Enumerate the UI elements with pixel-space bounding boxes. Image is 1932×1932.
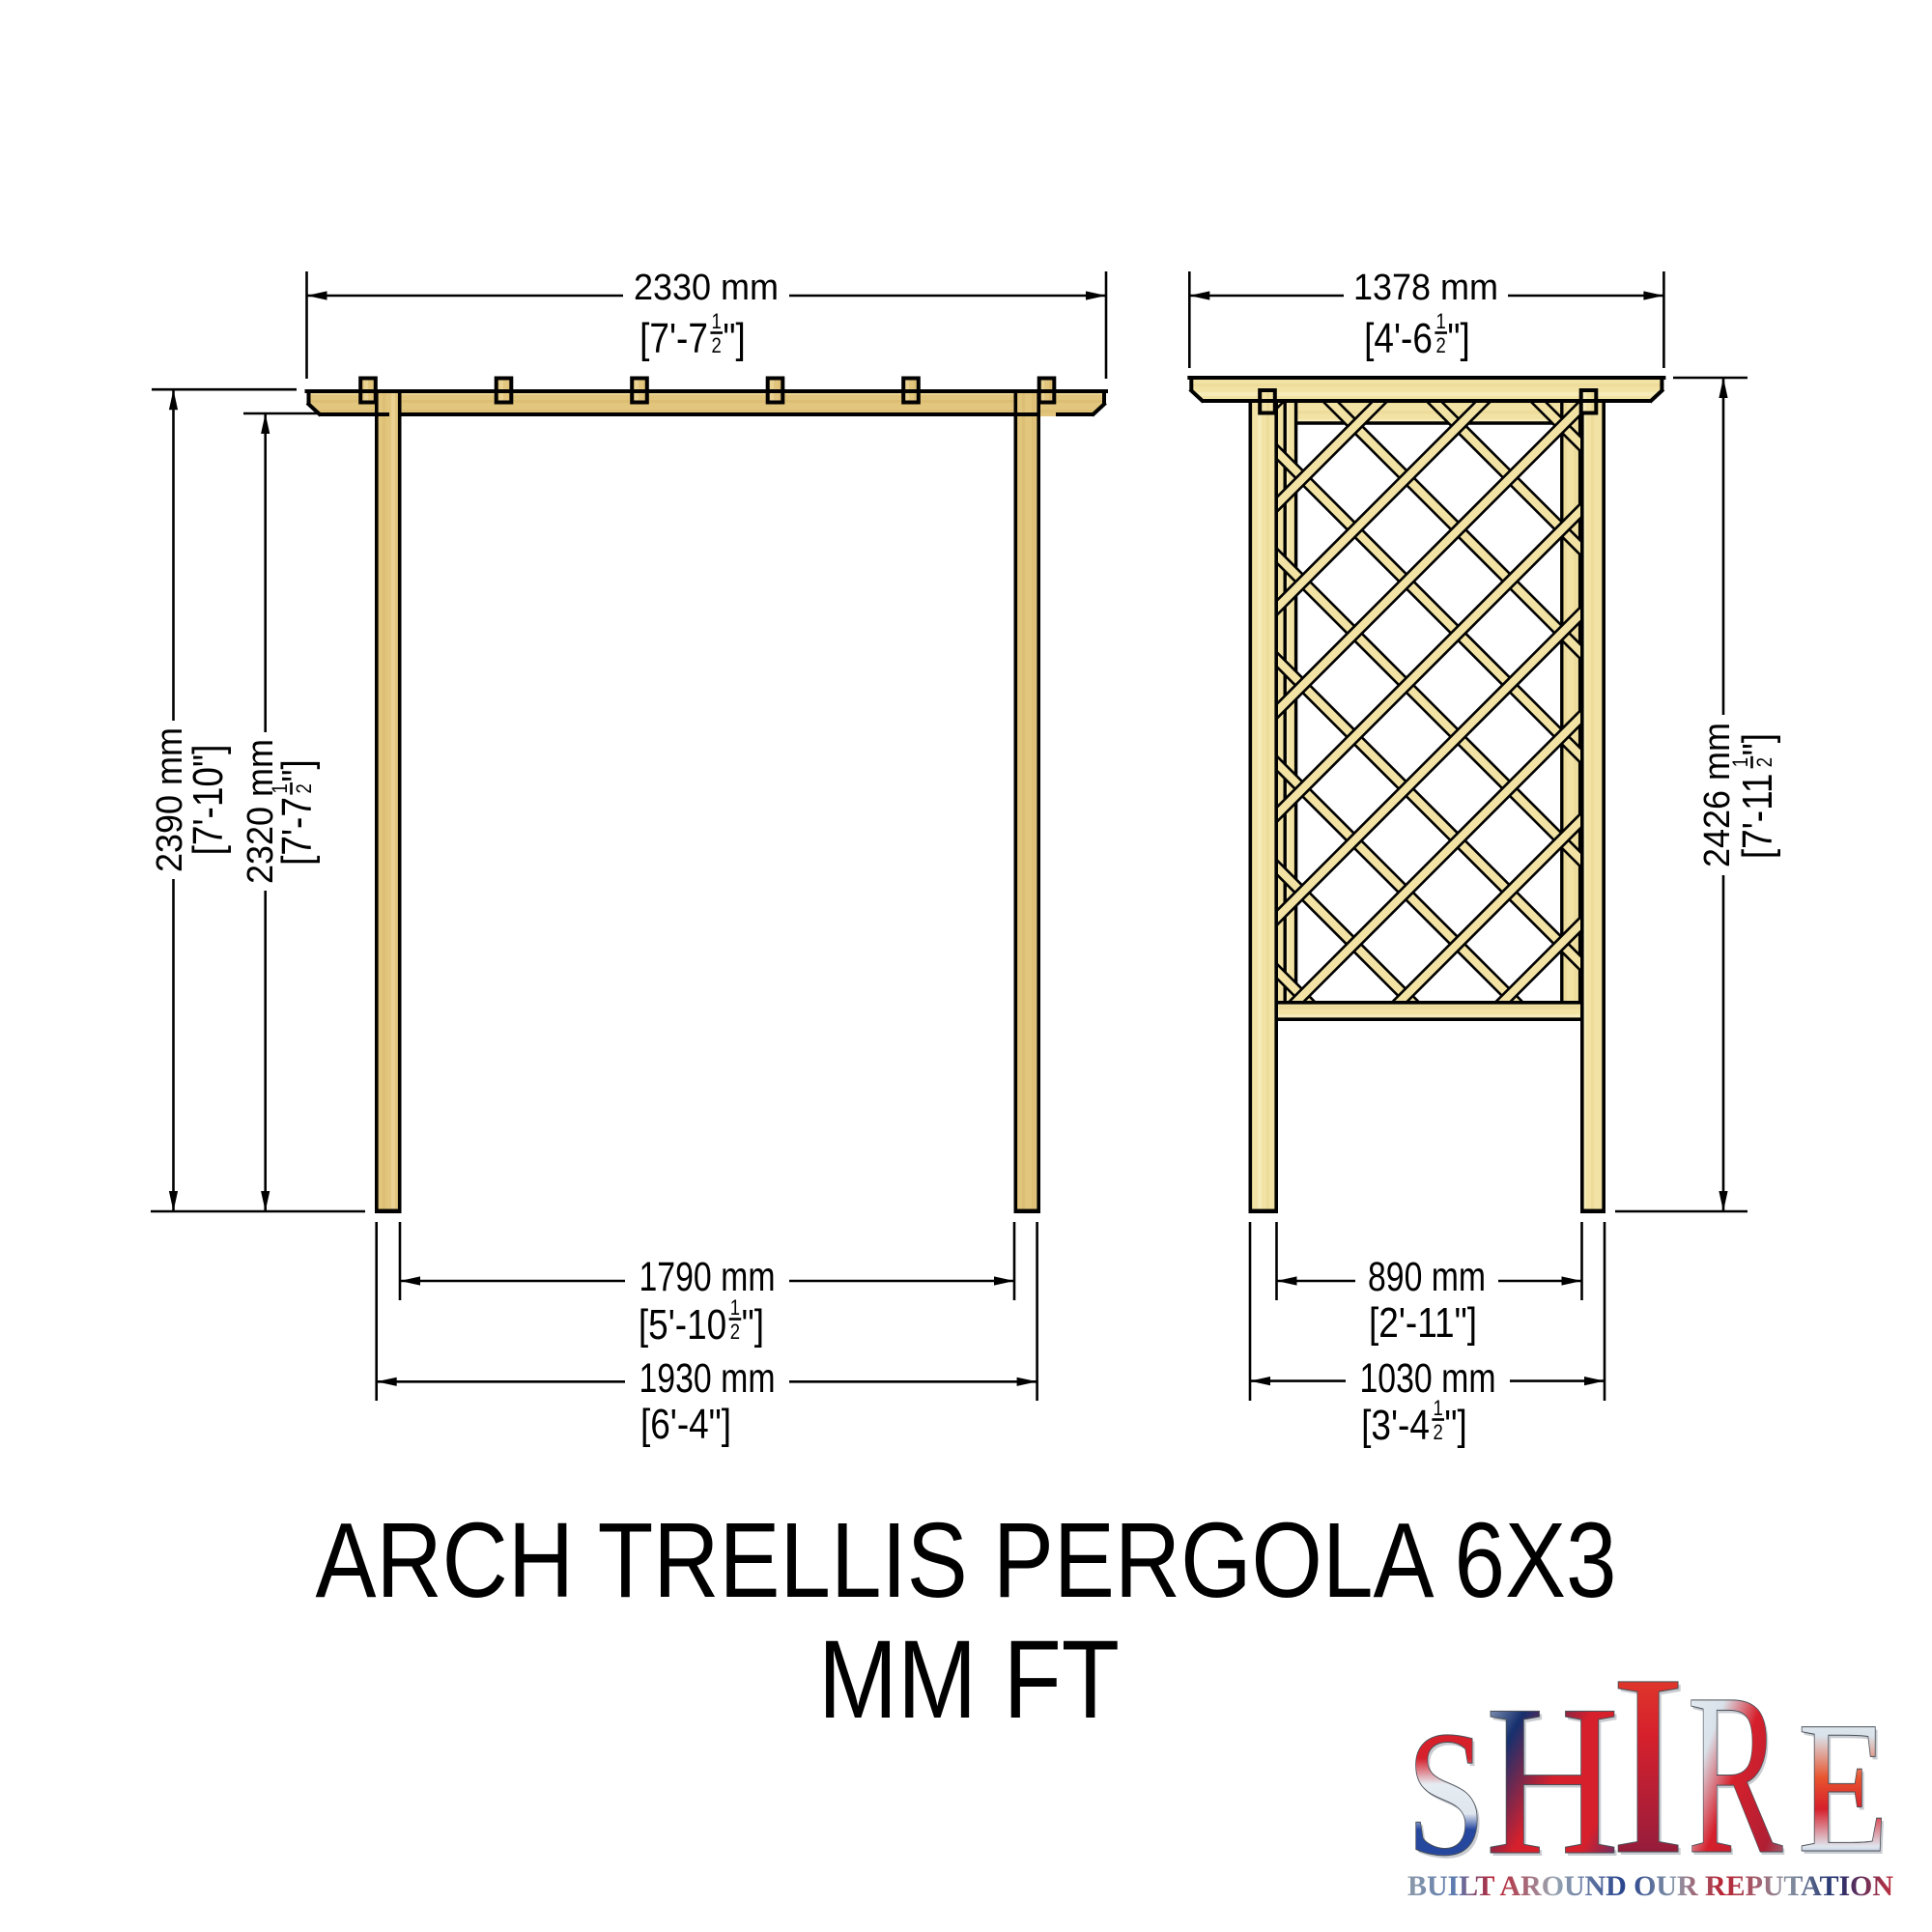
svg-text:1: 1 <box>1434 1398 1443 1421</box>
svg-text:1: 1 <box>730 1297 740 1321</box>
svg-text:I: I <box>1610 1620 1687 1908</box>
svg-text:[4'-6: [4'-6 <box>1364 314 1433 362</box>
svg-text:"]: "] <box>1447 314 1469 362</box>
svg-text:H: H <box>1485 1662 1619 1901</box>
svg-text:1: 1 <box>1436 311 1446 334</box>
svg-text:MM FT: MM FT <box>818 1618 1120 1742</box>
svg-text:[5'-10: [5'-10 <box>639 1300 726 1349</box>
svg-text:890 mm: 890 mm <box>1368 1254 1486 1300</box>
svg-text:2: 2 <box>1436 335 1446 358</box>
svg-text:1930 mm: 1930 mm <box>639 1355 776 1402</box>
svg-text:E: E <box>1798 1684 1889 1892</box>
svg-text:2426 mm: 2426 mm <box>1697 723 1738 867</box>
svg-text:R: R <box>1687 1646 1782 1903</box>
svg-text:2: 2 <box>1754 757 1777 767</box>
svg-text:2: 2 <box>712 335 722 358</box>
svg-text:2: 2 <box>730 1321 740 1345</box>
svg-text:2: 2 <box>294 783 317 793</box>
svg-text:"]: "] <box>1444 1401 1466 1449</box>
svg-text:1030 mm: 1030 mm <box>1360 1355 1496 1402</box>
svg-text:[7'-11: [7'-11 <box>1733 774 1781 860</box>
svg-text:[6'-4"]: [6'-4"] <box>640 1400 731 1448</box>
svg-text:[7'-7: [7'-7 <box>272 797 321 866</box>
svg-text:1: 1 <box>1730 757 1753 767</box>
svg-text:"]: "] <box>723 314 745 362</box>
svg-text:S: S <box>1406 1694 1487 1892</box>
svg-text:2330 mm: 2330 mm <box>634 268 779 308</box>
svg-text:1: 1 <box>712 311 722 334</box>
svg-text:1: 1 <box>270 783 293 793</box>
svg-text:[7'-7: [7'-7 <box>639 314 708 362</box>
svg-text:BUILT AROUND OUR REPUTATION: BUILT AROUND OUR REPUTATION <box>1407 1870 1893 1902</box>
svg-text:2: 2 <box>1434 1422 1443 1445</box>
svg-text:[2'-11"]: [2'-11"] <box>1369 1298 1477 1347</box>
svg-text:[3'-4: [3'-4 <box>1361 1401 1430 1449</box>
svg-text:1378 mm: 1378 mm <box>1353 268 1498 308</box>
svg-text:"]: "] <box>742 1300 764 1349</box>
svg-text:ARCH TRELLIS PERGOLA 6X3: ARCH TRELLIS PERGOLA 6X3 <box>316 1501 1617 1620</box>
svg-text:1790 mm: 1790 mm <box>639 1254 776 1300</box>
svg-text:"]: "] <box>272 759 321 781</box>
svg-text:"]: "] <box>1733 733 1781 755</box>
svg-text:[7'-10"]: [7'-10"] <box>184 745 232 856</box>
